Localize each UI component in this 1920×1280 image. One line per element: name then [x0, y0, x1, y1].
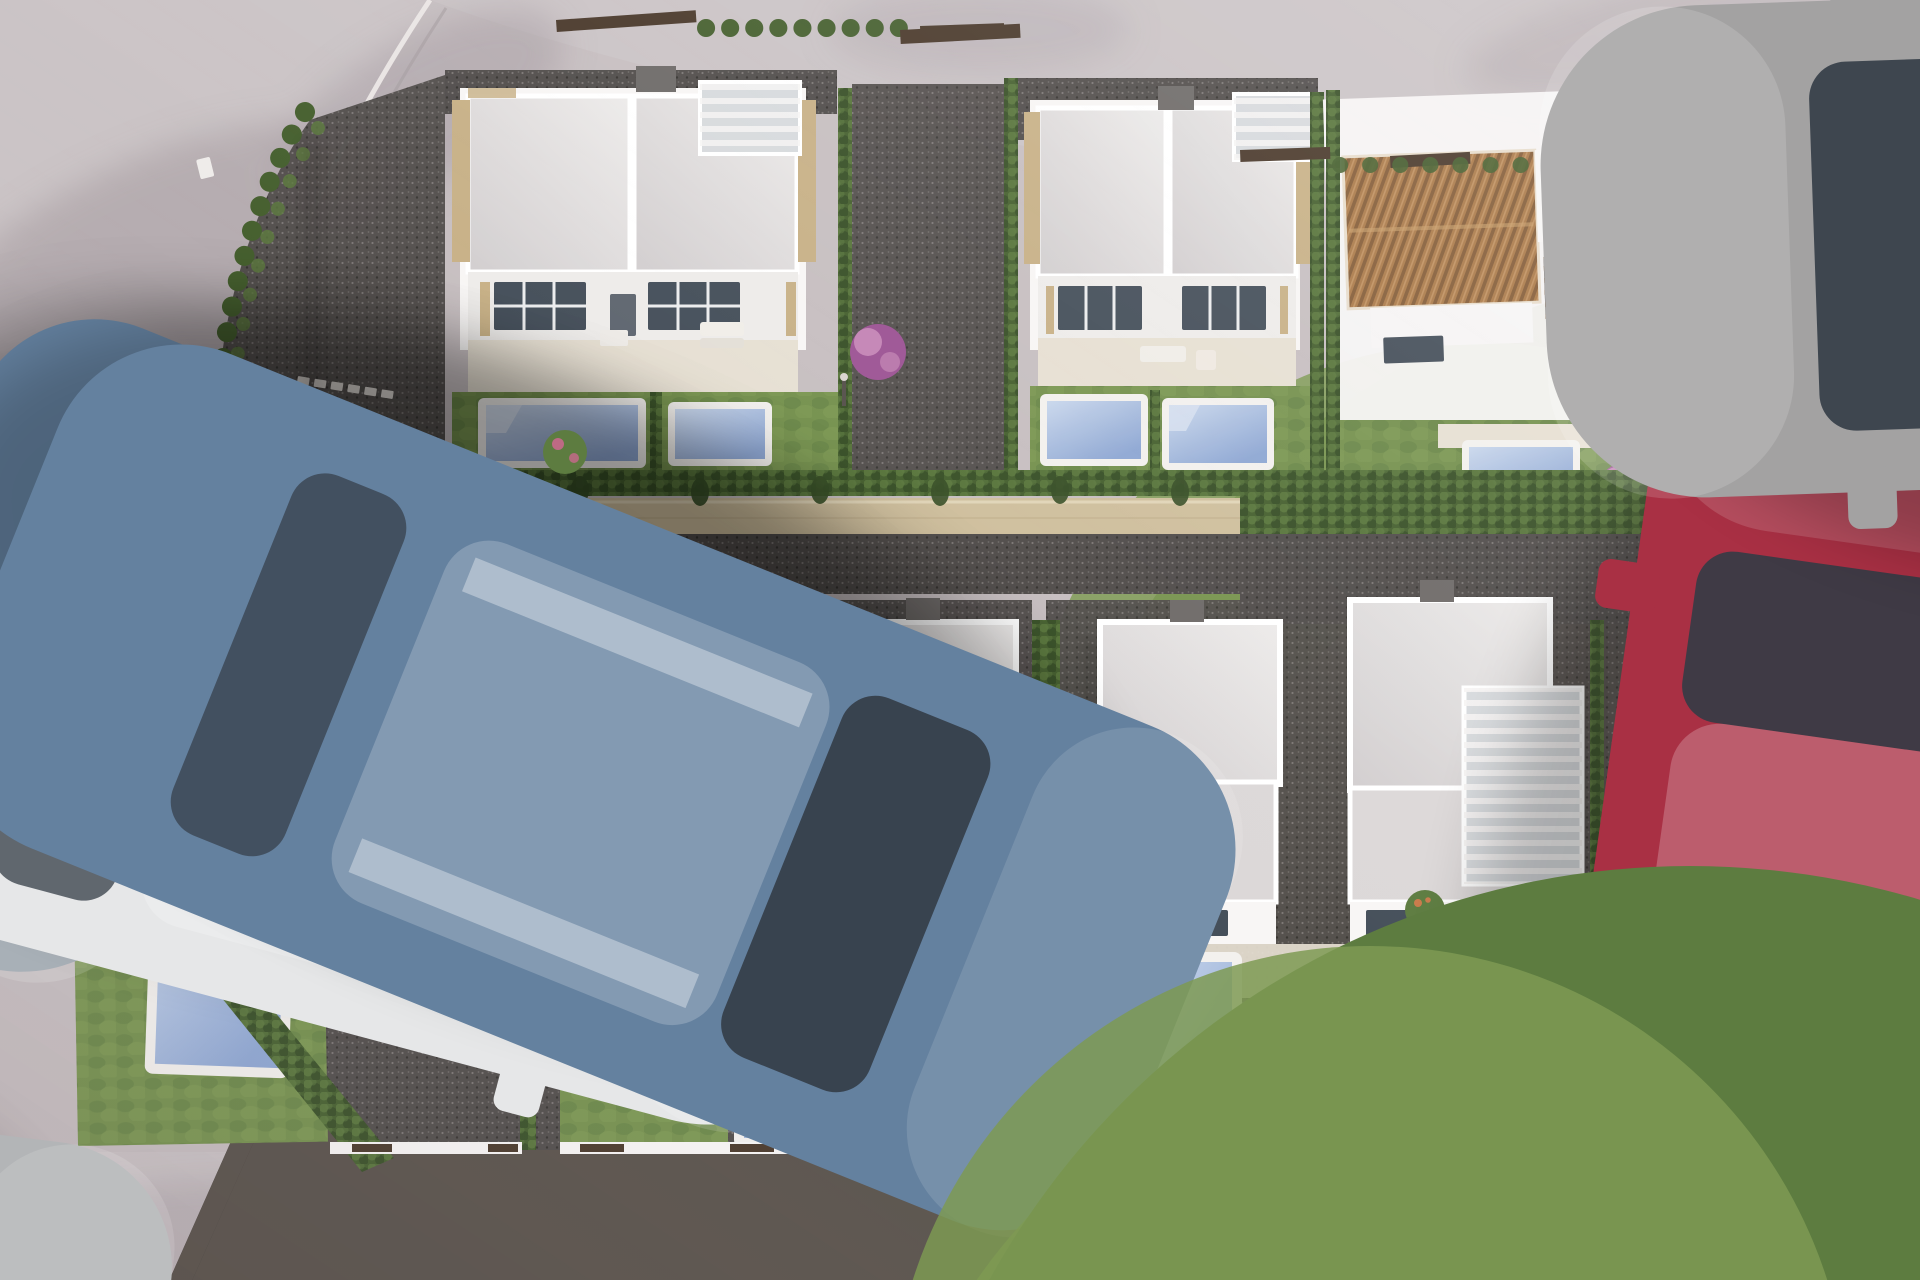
aerial-development-render [0, 0, 1920, 1280]
bougainvillea-tree [850, 324, 906, 380]
screenshot-stage [0, 0, 1920, 1280]
blossom-tree [543, 430, 587, 474]
